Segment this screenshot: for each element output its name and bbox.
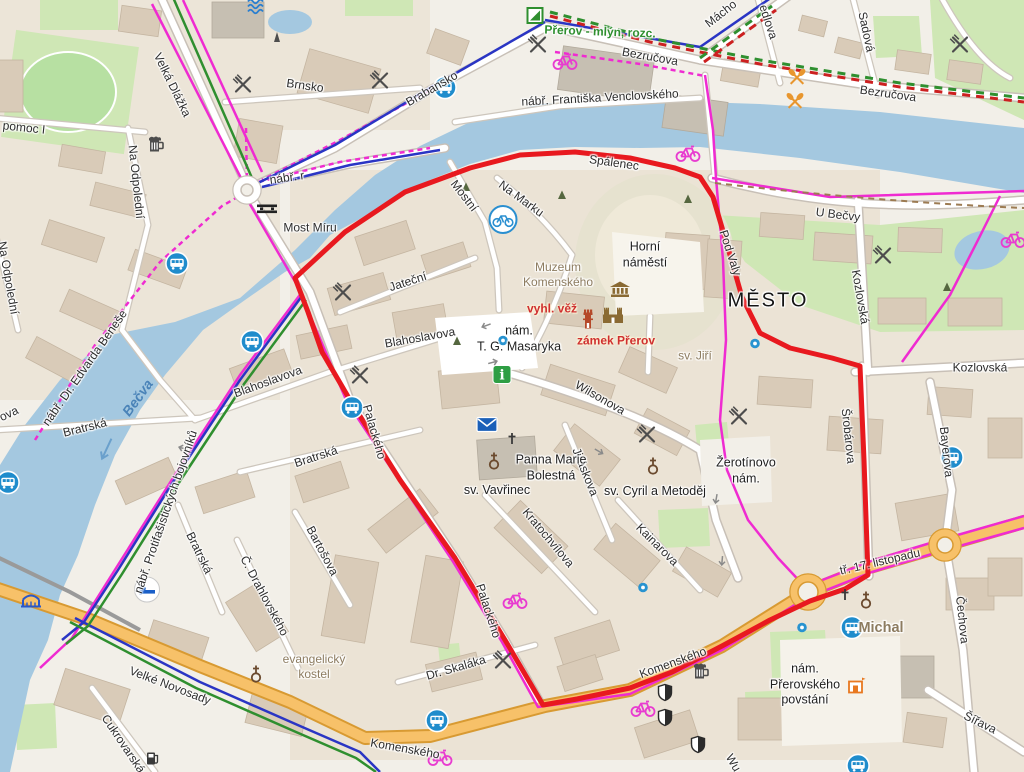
map-canvas[interactable]: i Velká Dlážkapomoc INa OdpoledníNa Odpo… xyxy=(0,0,1024,772)
map-base-render xyxy=(0,0,1024,772)
